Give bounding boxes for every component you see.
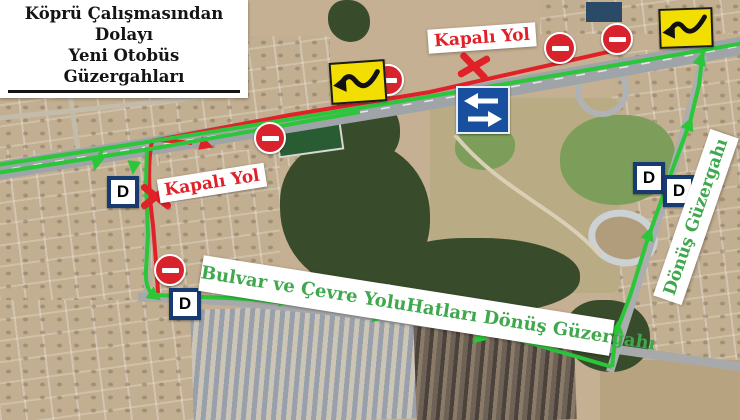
bus-route-map: D D D D Köprü Çalışmasından Dolayı Yeni … — [0, 0, 740, 420]
title-underline — [8, 90, 240, 93]
lane-shift-sign — [658, 7, 713, 49]
bus-stop-letter: D — [643, 168, 655, 188]
closed-x-icon — [455, 47, 493, 85]
lane-shift-icon — [331, 61, 386, 103]
bus-stop-sign: D — [107, 176, 139, 208]
no-entry-sign — [544, 32, 576, 64]
no-entry-sign — [601, 23, 633, 55]
bus-stop-sign: D — [169, 288, 201, 320]
no-entry-sign — [154, 254, 186, 286]
bus-stop-letter: D — [673, 181, 685, 201]
lane-shift-icon — [660, 9, 711, 47]
two-way-traffic-sign — [456, 86, 510, 134]
map-title-line2: Yeni Otobüs Güzergahları — [8, 45, 240, 87]
no-entry-sign — [254, 122, 286, 154]
map-title: Köprü Çalışmasından Dolayı Yeni Otobüs G… — [0, 0, 248, 98]
map-title-line1: Köprü Çalışmasından Dolayı — [8, 3, 240, 45]
bus-stop-letter: D — [179, 294, 191, 314]
two-way-traffic-icon — [458, 88, 508, 132]
lane-shift-sign — [329, 59, 388, 105]
bus-stop-letter: D — [117, 182, 129, 202]
bus-stop-sign: D — [633, 162, 665, 194]
